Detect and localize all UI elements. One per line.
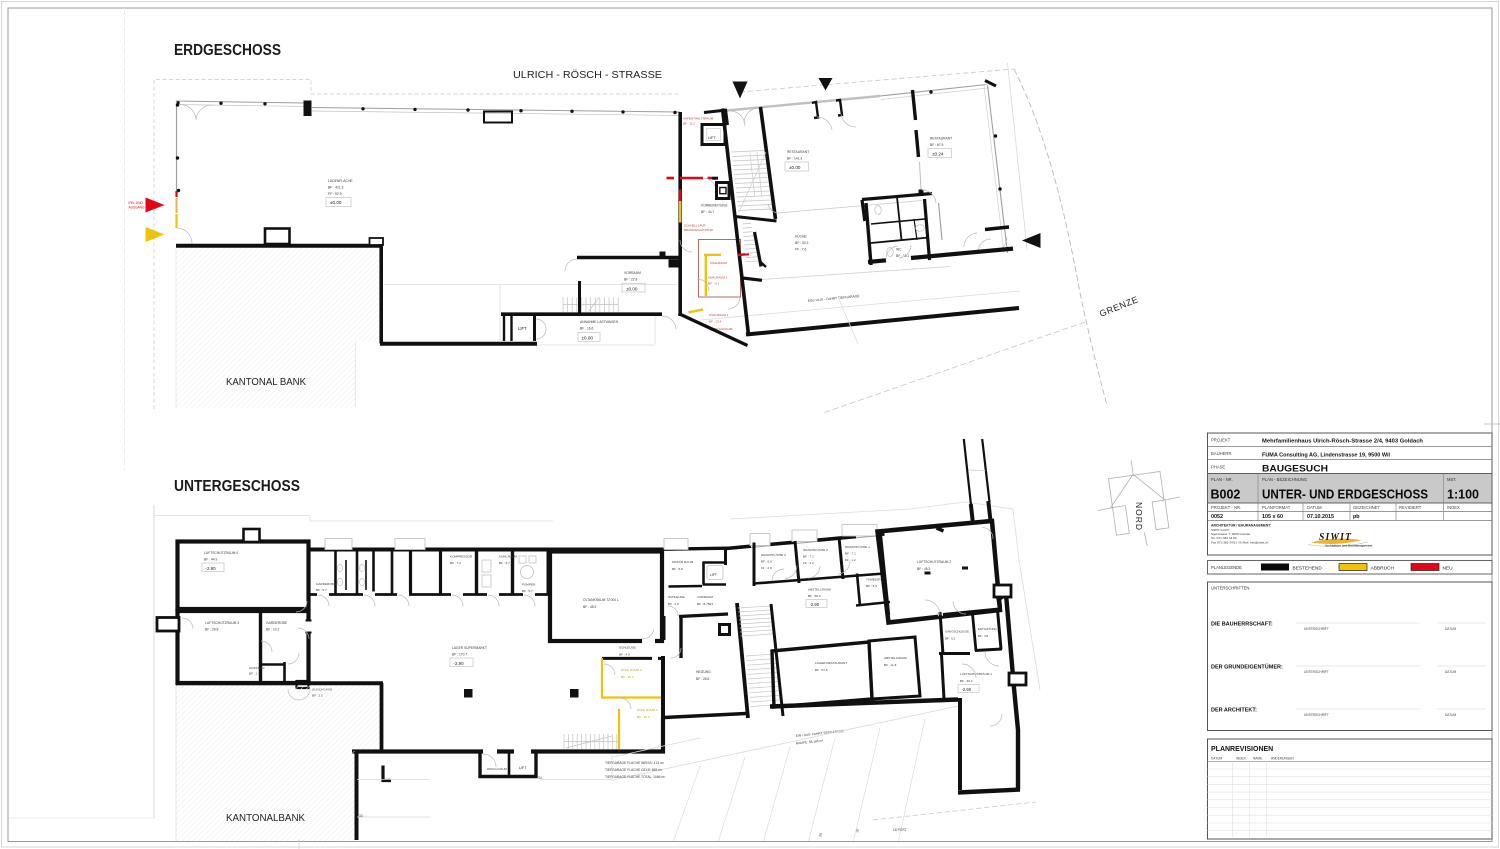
svg-text:BF : 5.8: BF : 5.8 <box>672 567 683 571</box>
svg-text:PROJEKT: PROJEKT <box>1211 438 1231 443</box>
svg-text:BF : 10.3: BF : 10.3 <box>637 715 650 719</box>
svg-text:LIFT: LIFT <box>518 326 527 331</box>
svg-text:SCHLEUSE: SCHLEUSE <box>668 595 685 599</box>
svg-text:VORBEREITUNG: VORBEREITUNG <box>701 204 728 208</box>
svg-text:REVIDIERT: REVIDIERT <box>1399 505 1422 510</box>
svg-text:BRANDSCHUTZTÜR: BRANDSCHUTZTÜR <box>684 228 714 232</box>
svg-text:ABBRUCH: ABBRUCH <box>1371 566 1395 572</box>
svg-text:FF : 7.6: FF : 7.6 <box>795 248 807 252</box>
svg-text:WASCHKÜCHE 3: WASCHKÜCHE 3 <box>761 553 786 557</box>
svg-text:±0.00: ±0.00 <box>330 200 342 205</box>
svg-text:NAME: NAME <box>1253 757 1262 761</box>
svg-text:BF : 6.6: BF : 6.6 <box>761 560 772 564</box>
svg-text:BF : 7.2: BF : 7.2 <box>450 561 461 565</box>
svg-text:WASCHKÜCHE 2: WASCHKÜCHE 2 <box>803 548 828 552</box>
svg-text:INDEX: INDEX <box>1447 505 1460 510</box>
svg-text:SIWIT: SIWIT <box>1319 532 1352 543</box>
svg-text:07.10.2015: 07.10.2015 <box>1307 514 1334 520</box>
svg-text:Mehrfamilienhaus Ulrich-Rösch-: Mehrfamilienhaus Ulrich-Rösch-Strasse 2/… <box>1262 439 1424 445</box>
svg-text:BF : 141.3: BF : 141.3 <box>787 157 802 161</box>
svg-text:±0.00: ±0.00 <box>789 165 801 170</box>
svg-text:UNTERSCHRIFT: UNTERSCHRIFT <box>1304 627 1329 631</box>
svg-text:BF : 7.1: BF : 7.1 <box>845 552 856 556</box>
svg-text:BF : 5.2: BF : 5.2 <box>945 637 956 641</box>
svg-text:PHASE: PHASE <box>1211 465 1225 470</box>
svg-text:PLANLEGENDE: PLANLEGENDE <box>1211 565 1242 570</box>
svg-text:WC: WC <box>896 248 902 252</box>
svg-text:AUFENTHALTSRAUM: AUFENTHALTSRAUM <box>683 117 714 121</box>
svg-text:BF : 6.7: BF : 6.7 <box>499 561 510 565</box>
svg-text:BF : 5.7: BF : 5.7 <box>316 588 327 592</box>
svg-text:PLAN - BEZEICHNUNG: PLAN - BEZEICHNUNG <box>1262 477 1307 482</box>
svg-text:LUFTSCHUTZRAUM 3: LUFTSCHUTZRAUM 3 <box>205 621 239 625</box>
svg-text:ANNAHME LASTWAGEN: ANNAHME LASTWAGEN <box>580 320 619 324</box>
svg-text:PLANREVISIONEN: PLANREVISIONEN <box>1211 746 1273 753</box>
svg-text:BF : 57.6: BF : 57.6 <box>815 668 828 672</box>
svg-text:DATUM: DATUM <box>1445 670 1456 674</box>
svg-text:-2.90: -2.90 <box>810 602 820 607</box>
svg-text:BF : 22.8: BF : 22.8 <box>624 278 638 282</box>
svg-text:UNTERGESCHOSS: UNTERGESCHOSS <box>174 478 300 495</box>
svg-text:PLAN - NR.: PLAN - NR. <box>1211 477 1233 482</box>
svg-text:FUMA Consulting AG, Lindenstra: FUMA Consulting AG, Lindenstrasse 19, 95… <box>1262 453 1390 459</box>
svg-text:BF : -0.1: BF : -0.1 <box>708 282 720 286</box>
svg-text:DATUM: DATUM <box>1445 627 1456 631</box>
svg-text:B002: B002 <box>1211 488 1241 502</box>
svg-text:GANGSCHLEUSE: GANGSCHLEUSE <box>945 630 969 634</box>
svg-text:PLANFORMAT: PLANFORMAT <box>1262 505 1291 510</box>
svg-text:BF : 411.3: BF : 411.3 <box>328 186 344 190</box>
svg-text:BF : 170.7: BF : 170.7 <box>452 653 467 657</box>
svg-text:TIEFGARAGE FLÄCHE GELB: 655 m²: TIEFGARAGE FLÄCHE GELB: 655 m² <box>605 768 663 772</box>
svg-text:BF : 7.1: BF : 7.1 <box>803 555 814 559</box>
svg-text:LIFT: LIFT <box>710 573 717 577</box>
svg-text:TIEFGARAGE FLÄCHE WEISS: 413 m: TIEFGARAGE FLÄCHE WEISS: 413 m² <box>605 761 665 765</box>
svg-text:ULRICH - RÖSCH - STRASSE: ULRICH - RÖSCH - STRASSE <box>513 69 662 81</box>
svg-text:TUMBLER: TUMBLER <box>866 578 882 582</box>
svg-text:Fax 071-383 34 81 / E-Mail:: Fax 071-383 34 81 / E-Mail: info@siwit.c… <box>1211 541 1269 545</box>
svg-text:GEZEICHNET: GEZEICHNET <box>1353 505 1380 510</box>
svg-text:UNTERSCHRIFTEN: UNTERSCHRIFTEN <box>1211 586 1249 591</box>
svg-text:BF : 39.2: BF : 39.2 <box>960 679 973 683</box>
svg-text:DIE BAUHERRSCHAFT:: DIE BAUHERRSCHAFT: <box>1211 622 1273 628</box>
svg-text:ABSTELLRAUM: ABSTELLRAUM <box>808 588 831 592</box>
svg-text:BF : 26.8: BF : 26.8 <box>205 628 219 632</box>
svg-text:BAUHERR: BAUHERR <box>1211 451 1231 456</box>
svg-text:AUSSTIEG: AUSSTIEG <box>249 666 265 670</box>
svg-text:BF : 10.2: BF : 10.2 <box>266 628 280 632</box>
svg-text:LUFTSCHUTZRAUM 4: LUFTSCHUTZRAUM 4 <box>204 551 238 555</box>
svg-text:TIEFGARAGE FLÄCHE TOTAL: 1066: TIEFGARAGE FLÄCHE TOTAL: 1066 m² <box>605 775 666 779</box>
svg-text:KOMPRESSOR: KOMPRESSOR <box>450 555 473 559</box>
svg-text:1:100: 1:100 <box>1447 488 1479 502</box>
svg-text:ÖLTANKRAUM 72'000 L: ÖLTANKRAUM 72'000 L <box>583 598 619 602</box>
svg-text:RESTAURANT: RESTAURANT <box>930 137 952 141</box>
svg-text:BF : 11.2: BF : 11.2 <box>683 122 695 126</box>
svg-text:Architektur und Baumanagement: Architektur und Baumanagement <box>1325 544 1372 548</box>
svg-text:FF : 1.2: FF : 1.2 <box>803 561 814 565</box>
svg-text:BF : 44.9: BF : 44.9 <box>204 558 218 562</box>
svg-text:pb: pb <box>1353 514 1360 520</box>
svg-text:BF : 48.5: BF : 48.5 <box>583 605 597 609</box>
svg-text:GARDEROBE: GARDEROBE <box>266 621 288 625</box>
svg-text:NEU: NEU <box>1443 566 1454 572</box>
svg-text:BF : 67.9: BF : 67.9 <box>930 143 944 147</box>
svg-text:WASCHKÜCHE 1: WASCHKÜCHE 1 <box>845 545 870 549</box>
svg-text:±0.00: ±0.00 <box>626 287 638 292</box>
svg-text:DER GRUNDEIGENTÜMER:: DER GRUNDEIGENTÜMER: <box>1211 664 1283 671</box>
svg-text:LIFT: LIFT <box>708 136 716 140</box>
svg-text:DATUM: DATUM <box>1211 757 1222 761</box>
svg-text:PUMPEN: PUMPEN <box>522 583 535 587</box>
svg-text:0052: 0052 <box>1211 514 1223 520</box>
svg-text:-2.90: -2.90 <box>206 566 217 571</box>
svg-text:ERDGESCHOSS: ERDGESCHOSS <box>174 42 281 59</box>
svg-text:ENTGIFTUNG: ENTGIFTUNG <box>978 627 998 631</box>
svg-text:SCHNELLLAUF: SCHNELLLAUF <box>684 224 706 228</box>
svg-text:BF : 11.8: BF : 11.8 <box>884 663 897 667</box>
svg-text:NORD: NORD <box>1134 502 1144 531</box>
svg-text:ÄNDERUNGEN: ÄNDERUNGEN <box>1271 757 1294 761</box>
svg-text:KÜHLRAUM: KÜHLRAUM <box>710 261 727 265</box>
svg-text:LAGER SUPERMARKT: LAGER SUPERMARKT <box>452 646 487 650</box>
svg-text:-2.90: -2.90 <box>454 661 465 666</box>
svg-text:BF : 58.3: BF : 58.3 <box>808 594 821 598</box>
svg-text:LUFTSCHUTZRAUM 2: LUFTSCHUTZRAUM 2 <box>917 560 951 564</box>
svg-text:SCHLEUSE: SCHLEUSE <box>619 646 636 650</box>
svg-text:BF : 16.6: BF : 16.6 <box>580 327 594 331</box>
svg-text:BF : 4.0: BF : 4.0 <box>619 653 630 657</box>
svg-text:KANTONALBANK: KANTONALBANK <box>226 813 305 824</box>
svg-text:105 x 60: 105 x 60 <box>1262 514 1283 520</box>
svg-text:HEIZUNG: HEIZUNG <box>696 670 711 674</box>
svg-text:ARCHITEKTUR / BAUMANAGEMENT:: ARCHITEKTUR / BAUMANAGEMENT: <box>1211 524 1271 528</box>
svg-text:BF : 1.7: BF : 1.7 <box>249 672 260 676</box>
svg-text:BF : 3.9: BF : 3.9 <box>866 584 877 588</box>
svg-text:WASCH RAUM: WASCH RAUM <box>487 767 508 771</box>
svg-text:BF : 13.4: BF : 13.4 <box>709 320 722 324</box>
svg-text:-2.90: -2.90 <box>962 687 972 692</box>
svg-text:DATUM: DATUM <box>1307 505 1322 510</box>
svg-text:EIN- UND: EIN- UND <box>129 201 144 205</box>
svg-text:BF : 10.3: BF : 10.3 <box>621 675 634 679</box>
svg-text:KÜHL RAUM 2: KÜHL RAUM 2 <box>621 668 642 672</box>
svg-text:BF : 5.7: BF : 5.7 <box>522 589 533 593</box>
svg-text:BF : 44.7: BF : 44.7 <box>701 210 715 214</box>
svg-text:DATUM: DATUM <box>1445 713 1456 717</box>
svg-text:VORRAUM: VORRAUM <box>697 595 713 599</box>
svg-text:UNTERSCHRIFT: UNTERSCHRIFT <box>1304 713 1329 717</box>
svg-text:GARDEROBE: GARDEROBE <box>316 582 336 586</box>
svg-text:MST.: MST. <box>1447 477 1457 482</box>
svg-text:KÜHLRAUM 1: KÜHLRAUM 1 <box>708 276 728 280</box>
svg-text:BF : 2.8: BF : 2.8 <box>668 602 679 606</box>
svg-text:KÜCHE: KÜCHE <box>795 235 807 239</box>
svg-text:BF : 4.8: BF : 4.8 <box>978 634 989 638</box>
svg-text:DER ARCHITEKT:: DER ARCHITEKT: <box>1211 708 1257 714</box>
svg-text:PROJEKT - NR.: PROJEKT - NR. <box>1211 505 1241 510</box>
svg-text:MASCH RAUM: MASCH RAUM <box>672 560 694 564</box>
svg-text:KÜHL RAUM: KÜHL RAUM <box>499 555 518 559</box>
svg-text:UNTER- UND ERDGESCHOSS: UNTER- UND ERDGESCHOSS <box>1262 488 1428 502</box>
svg-text:Tel. 071-383 34 80: Tel. 071-383 34 80 <box>1211 536 1237 540</box>
svg-text:LADENFLÄCHE: LADENFLÄCHE <box>328 179 353 183</box>
svg-text:RESTAURANT: RESTAURANT <box>787 150 809 154</box>
svg-text:BAUGESUCH: BAUGESUCH <box>1262 464 1328 474</box>
svg-text:BF : 33.3: BF : 33.3 <box>795 241 809 245</box>
svg-text:±0.00: ±0.00 <box>582 336 594 341</box>
svg-text:FF : 2.8: FF : 2.8 <box>761 566 772 570</box>
svg-text:VORRAUM: VORRAUM <box>624 271 641 275</box>
svg-text:BF : 8.7504: BF : 8.7504 <box>697 602 713 606</box>
svg-text:ABSTELLRAUM: ABSTELLRAUM <box>884 656 907 660</box>
svg-text:KÜHLRAUM 1: KÜHLRAUM 1 <box>709 313 729 317</box>
svg-text:BF : 28.5: BF : 28.5 <box>696 677 710 681</box>
svg-text:KANTONAL BANK: KANTONAL BANK <box>226 377 306 388</box>
svg-text:BF : 45.3: BF : 45.3 <box>917 567 931 571</box>
svg-text:BESTEHEND: BESTEHEND <box>1293 566 1323 572</box>
svg-text:KÜHL RAUM 1: KÜHL RAUM 1 <box>637 708 658 712</box>
svg-text:LIFT: LIFT <box>519 766 527 770</box>
svg-text:18 POST: 18 POST <box>893 828 907 832</box>
svg-text:FF : 1.2: FF : 1.2 <box>845 558 856 562</box>
svg-text:FF : 92.9: FF : 92.9 <box>328 192 342 196</box>
svg-text:AUSGANG: AUSGANG <box>129 206 145 210</box>
svg-text:INDEX: INDEX <box>1236 757 1247 761</box>
svg-text:UNTERSCHRIFT: UNTERSCHRIFT <box>1304 670 1329 674</box>
svg-text:LAGER RESTAURANT: LAGER RESTAURANT <box>815 661 847 665</box>
svg-text:±0.24: ±0.24 <box>932 152 944 157</box>
svg-text:33: 33 <box>359 814 363 818</box>
